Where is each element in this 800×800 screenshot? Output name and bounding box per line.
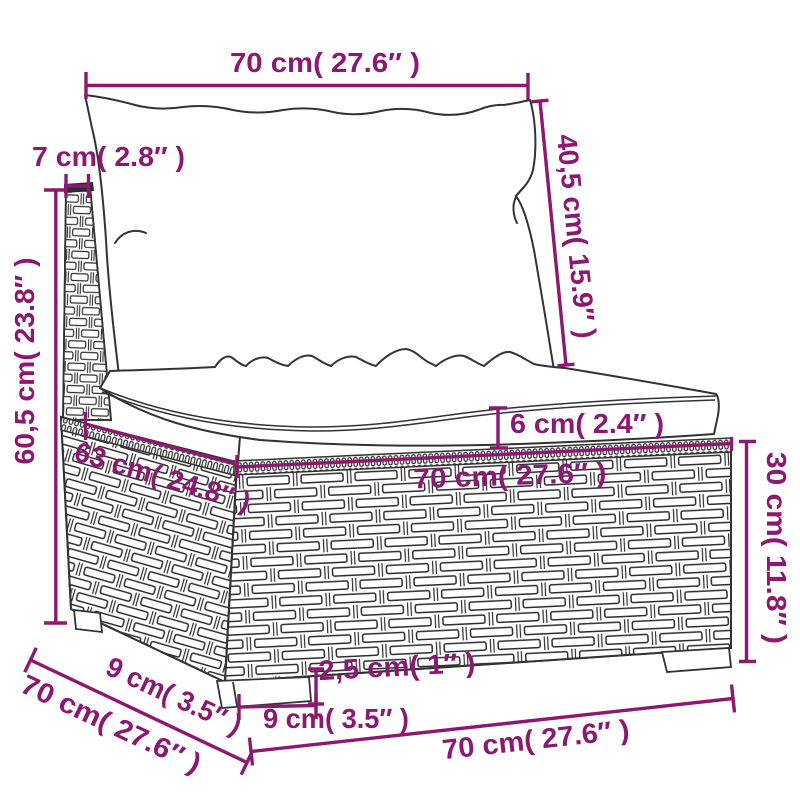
svg-text:7 cm( 2.8″ ): 7 cm( 2.8″ ) [32, 141, 185, 172]
svg-text:60,5 cm( 23.8″ ): 60,5 cm( 23.8″ ) [9, 258, 40, 465]
svg-text:9 cm( 3.5″ ): 9 cm( 3.5″ ) [263, 703, 409, 734]
svg-text:6 cm( 2.4″ ): 6 cm( 2.4″ ) [510, 408, 664, 439]
svg-text:40,5 cm( 15.9″ ): 40,5 cm( 15.9″ ) [551, 133, 602, 340]
svg-text:30 cm( 11.8″ ): 30 cm( 11.8″ ) [761, 452, 792, 644]
svg-text:70 cm( 27.6″ ): 70 cm( 27.6″ ) [230, 47, 420, 78]
